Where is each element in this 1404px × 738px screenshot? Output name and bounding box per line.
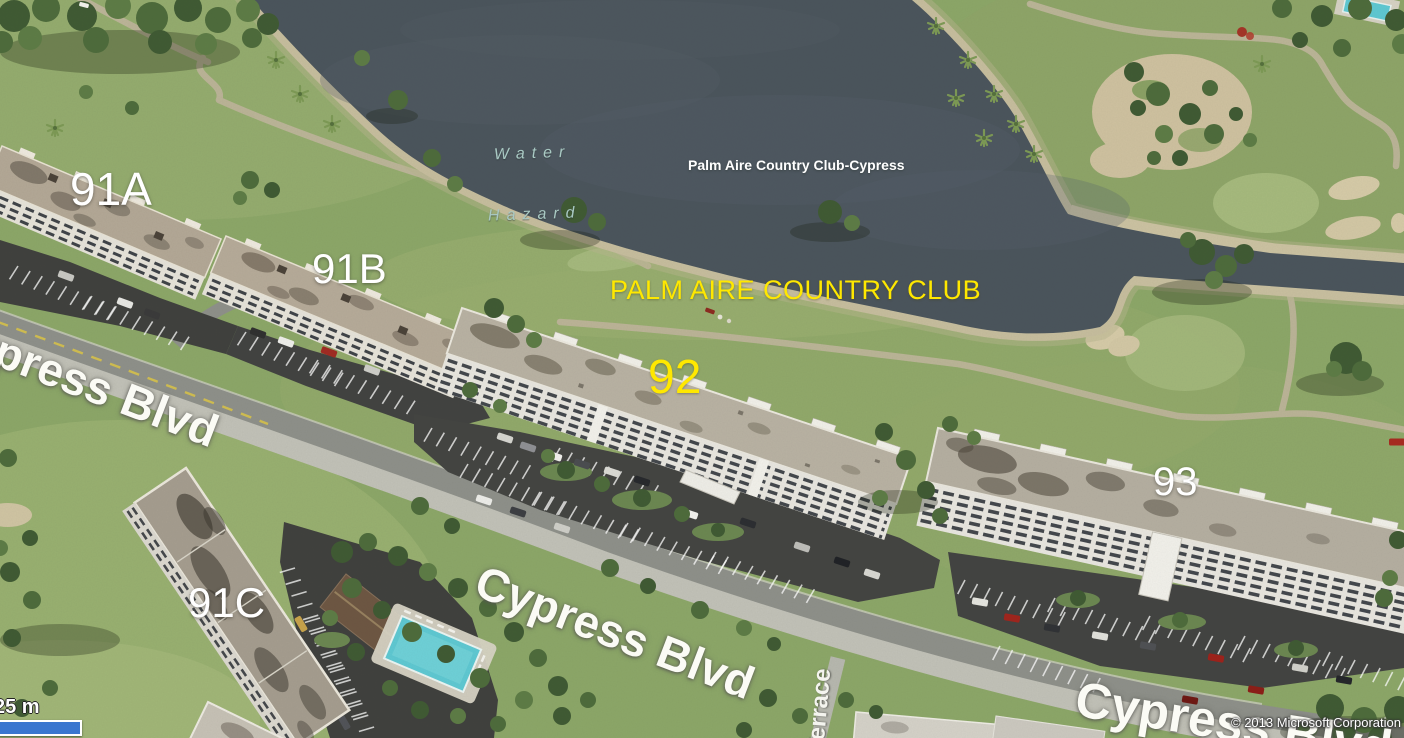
building-label-91a: 91A: [70, 166, 152, 212]
photo-grain-overlay: [0, 0, 1404, 738]
building-label-91c: 91C: [188, 582, 265, 624]
course-title-label: PALM AIRE COUNTRY CLUB: [610, 277, 981, 304]
water-hazard-label-line1: Water: [494, 145, 572, 164]
building-label-91b: 91B: [312, 248, 387, 290]
poi-label-golf-course: Palm Aire Country Club-Cypress: [688, 158, 905, 172]
attribution-text: © 2013 Microsoft Corporation: [1231, 716, 1401, 729]
street-label-terrace: Terrace: [804, 667, 835, 738]
aerial-map-canvas[interactable]: 91A 91B 91C 92 93 PALM AIRE COUNTRY CLUB…: [0, 0, 1404, 738]
aerial-imagery: [0, 0, 1404, 738]
building-label-93: 93: [1153, 462, 1198, 502]
building-label-92: 92: [648, 354, 701, 402]
water-hazard-label-line2: Hazard: [488, 205, 582, 224]
scale-distance-label: 25 m: [0, 697, 40, 717]
scale-bar: [0, 720, 82, 736]
